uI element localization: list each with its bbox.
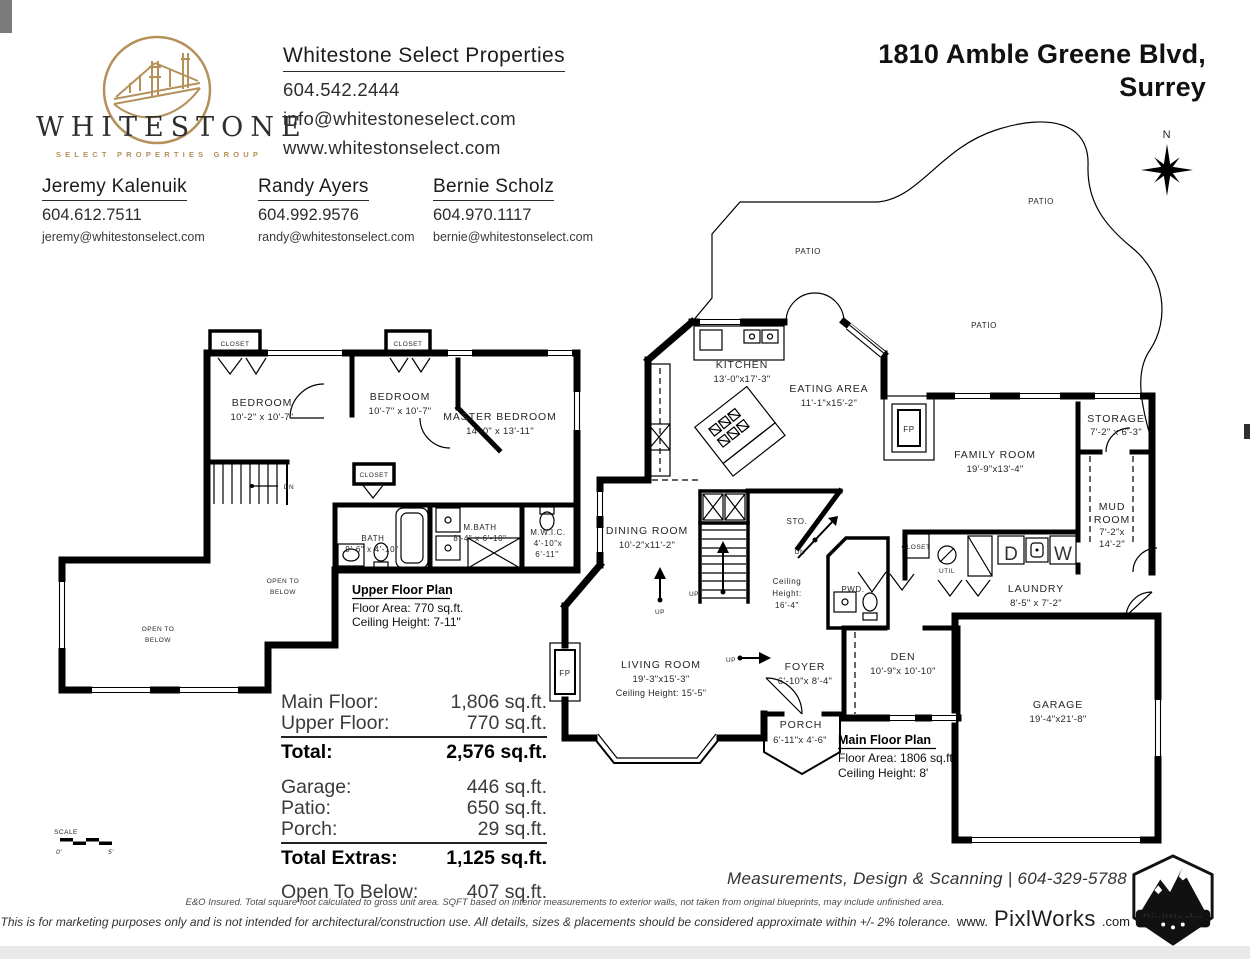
areas-table: Main Floor: 1,806 sq.ft. Upper Floor: 77… (281, 692, 547, 903)
pixlworks-url-www: www. (957, 914, 988, 929)
room-label: MASTER BEDROOM (443, 411, 557, 423)
room-dims: 19'-9"x13'-4" (966, 464, 1023, 475)
up-label: UP (726, 657, 736, 664)
upper-stairs (214, 464, 278, 504)
room-label: FAMILY ROOM (954, 449, 1036, 461)
closet-label: CLOSET (393, 341, 422, 348)
fp-label: FP (559, 669, 570, 678)
room-dims: 6'-10"x 8'-4" (778, 676, 832, 687)
row-value: 770 sq.ft. (467, 713, 547, 733)
sto-label: STO. (787, 517, 808, 526)
room-dims: 14'-2" (1099, 539, 1125, 550)
dn-label: DN (795, 549, 805, 556)
upper-floor-area: Floor Area: 770 sq.ft. (352, 601, 463, 615)
room-dims: 10'-9"x 10'-10" (870, 666, 936, 677)
scale-zero-label: 0' (56, 849, 62, 856)
room-dims: 14'-0" x 13'-11" (466, 426, 534, 437)
closet-label: CLOSET (359, 472, 388, 479)
table-row-total: Total: 2,576 sq.ft. (281, 742, 547, 762)
table-row: Upper Floor: 770 sq.ft. (281, 713, 547, 733)
row-label: Upper Floor: (281, 713, 389, 733)
main-floor-area: Floor Area: 1806 sq.ft. (838, 751, 956, 765)
up-label: UP (689, 591, 699, 598)
room-label: BATH (361, 534, 384, 543)
patio-label: PATIO (1028, 197, 1054, 206)
room-label: FOYER (785, 661, 826, 673)
fp-label: FP (903, 425, 914, 434)
room-label: LAUNDRY (1008, 583, 1064, 595)
closet-label: CLOSET (220, 341, 249, 348)
row-value: 2,576 sq.ft. (446, 742, 547, 762)
row-label: Garage: (281, 777, 351, 797)
table-row-total-extras: Total Extras: 1,125 sq.ft. (281, 848, 547, 868)
row-label: Patio: (281, 798, 331, 818)
room-label: BEDROOM (232, 397, 293, 409)
room-dims: 8'-4" x 6'-10" (453, 534, 506, 543)
room-label: MUD (1099, 501, 1126, 513)
open-to-below-label: OPEN TO (142, 626, 175, 633)
open-to-below-label: BELOW (270, 589, 296, 596)
patio-label: PATIO (795, 247, 821, 256)
row-label: Total Extras: (281, 848, 398, 868)
dryer-label: D (1004, 544, 1018, 565)
upper-floor-windows (60, 351, 580, 693)
patio-outline (692, 122, 1162, 458)
row-value: 446 sq.ft. (467, 777, 547, 797)
row-label: Main Floor: (281, 692, 379, 712)
washer-label: W (1054, 544, 1072, 565)
dn-label: DN (284, 484, 294, 491)
room-dims: 10'-2" x 10'-7" (231, 412, 294, 423)
row-value: 29 sq.ft. (478, 819, 547, 839)
pwd-label: PWD. (841, 585, 864, 594)
room-dims: 9'-6" x 4'-10" (345, 545, 398, 554)
pixlworks-url-brand: PixlWorks (994, 906, 1096, 932)
bottom-gray-strip (0, 946, 1250, 959)
table-row: Main Floor: 1,806 sq.ft. (281, 692, 547, 712)
disclaimer-line2: This is for marketing purposes only and … (0, 915, 950, 929)
patio-label: PATIO (971, 321, 997, 330)
room-dims: 10'-7" x 10'-7" (369, 406, 432, 417)
room-dims: 10'-2"x11'-2" (619, 540, 675, 551)
room-dims: 7'-2" x 6'-3" (1090, 427, 1142, 438)
flyer-page: WHITESTONE SELECT PROPERTIES GROUP White… (0, 0, 1250, 959)
open-to-below-label: BELOW (145, 637, 171, 644)
room-label: ROOM (1094, 514, 1130, 526)
room-dims: 7'-2"x (1099, 527, 1124, 538)
row-value: 1,125 sq.ft. (446, 848, 547, 868)
table-rule (281, 842, 547, 844)
upper-floor-ceiling: Ceiling Height: 7-11" (352, 615, 461, 629)
disclaimer-line2-row: This is for marketing purposes only and … (0, 906, 1130, 932)
compass-rose-icon: N (1141, 129, 1193, 196)
table-rule (281, 736, 547, 738)
ceiling-height-label: 16'-4" (775, 601, 799, 610)
laundry-appliances (903, 534, 1076, 576)
row-value: 650 sq.ft. (467, 798, 547, 818)
scan-edge-artifact (1244, 424, 1250, 439)
table-row: Porch: 29 sq.ft. (281, 819, 547, 839)
room-dims: 19'-3"x15'-3" (632, 674, 689, 685)
room-label: DEN (891, 651, 916, 663)
powder-room-fixtures (834, 592, 877, 620)
pixlworks-tagline: Measurements, Design & Scanning | 604-32… (727, 869, 1127, 889)
scale-label: SCALE (54, 829, 78, 836)
main-floor-ceiling: Ceiling Height: 8' (838, 766, 928, 780)
scan-edge-artifact (0, 0, 12, 33)
room-label: DINING ROOM (606, 525, 688, 537)
room-label: LIVING ROOM (621, 659, 701, 671)
upper-door-symbols (218, 358, 450, 498)
room-label: M.BATH (463, 523, 496, 532)
room-label: STORAGE (1087, 413, 1144, 425)
scale-five-label: 5' (108, 849, 114, 856)
room-dims: 8'-5" x 7'-2" (1010, 598, 1062, 609)
ceiling-height-label: Height: (772, 589, 802, 598)
floor-plan-svg: N (0, 0, 1250, 959)
room-dims: 11'-1"x15'-2" (801, 398, 857, 409)
kitchen-island (695, 387, 785, 476)
table-row: Patio: 650 sq.ft. (281, 798, 547, 818)
room-label: EATING AREA (789, 383, 868, 395)
pixlworks-logo-icon: PixlWorks (1128, 853, 1218, 947)
pixlworks-url-com: .com (1102, 914, 1130, 929)
room-label: M.W.I.C. (530, 528, 565, 537)
room-dims: 4'-10"x (534, 539, 563, 548)
room-dims: 13'-0"x17'-3" (713, 374, 770, 385)
bay-window (594, 734, 720, 763)
room-dims: 6'-11" (535, 550, 558, 559)
room-dims: 6'-11"x 4'-6" (773, 735, 827, 746)
room-label: BEDROOM (370, 391, 431, 403)
closet-label: CLOSET (901, 544, 930, 551)
kitchen-counters (648, 326, 784, 480)
ceiling-height-label: Ceiling (773, 577, 802, 586)
row-label: Total: (281, 742, 333, 762)
room-label: GARAGE (1033, 699, 1083, 711)
row-label: Porch: (281, 819, 337, 839)
scale-bar: SCALE 0' 5' (54, 829, 114, 856)
upper-floor-plan-title: Upper Floor Plan (352, 583, 453, 597)
room-dims: 19'-4"x21'-8" (1029, 714, 1086, 725)
room-label: KITCHEN (716, 359, 768, 371)
small-labels: CLOSET CLOSET CLOSET CLOSET OPEN TO BELO… (142, 197, 1072, 678)
row-value: 1,806 sq.ft. (451, 692, 547, 712)
table-row: Garage: 446 sq.ft. (281, 777, 547, 797)
room-note: Ceiling Height: 15'-5" (616, 688, 707, 698)
open-to-below-label: OPEN TO (267, 578, 300, 585)
util-label: UTIL (939, 568, 955, 575)
room-label: PORCH (780, 719, 822, 731)
up-label: UP (655, 609, 665, 616)
compass-north-label: N (1163, 129, 1172, 141)
main-floor-plan-title: Main Floor Plan (838, 733, 931, 747)
